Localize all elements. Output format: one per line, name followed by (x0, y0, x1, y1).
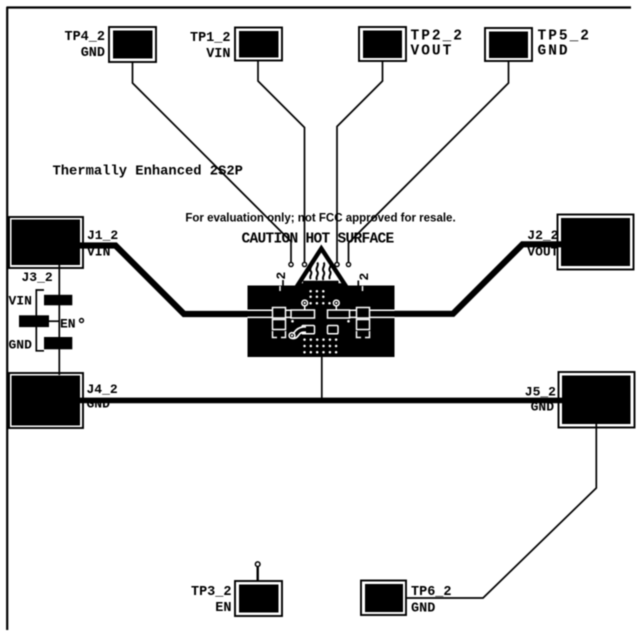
svg-text:EN: EN (60, 317, 76, 332)
svg-text:TP4_2: TP4_2 (64, 30, 105, 45)
svg-text:J1_2: J1_2 (87, 228, 118, 243)
svg-text:2: 2 (274, 272, 289, 280)
svg-text:VOUT: VOUT (411, 44, 454, 60)
svg-text:GND: GND (81, 46, 105, 61)
svg-text:TP3_2: TP3_2 (191, 585, 232, 600)
svg-text:For evaluation only; not FCC a: For evaluation only; not FCC approved fo… (185, 213, 455, 225)
svg-text:EN: EN (215, 601, 231, 616)
svg-text:TP5_2: TP5_2 (538, 29, 592, 45)
svg-text:VIN: VIN (9, 294, 32, 309)
svg-text:J5_2: J5_2 (525, 385, 556, 400)
svg-text:VIN: VIN (206, 47, 230, 62)
svg-text:J2_2: J2_2 (527, 228, 558, 243)
svg-text:TP6_2: TP6_2 (411, 585, 452, 600)
svg-text:TP2_2: TP2_2 (411, 29, 465, 45)
svg-text:GND: GND (538, 44, 570, 60)
svg-text:TP1_2: TP1_2 (190, 31, 231, 46)
svg-text:2: 2 (357, 273, 372, 281)
svg-text:GND: GND (9, 338, 33, 353)
svg-text:GND: GND (411, 602, 435, 617)
svg-text:J3_2: J3_2 (22, 270, 53, 285)
svg-text:CAUTION HOT SURFACE: CAUTION HOT SURFACE (242, 232, 395, 248)
svg-text:Thermally Enhanced 2S2P: Thermally Enhanced 2S2P (53, 164, 243, 180)
svg-text:J4_2: J4_2 (87, 382, 118, 397)
